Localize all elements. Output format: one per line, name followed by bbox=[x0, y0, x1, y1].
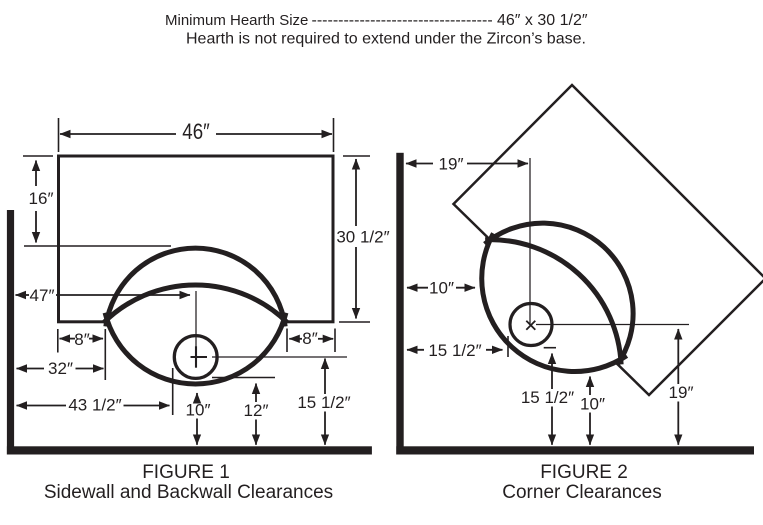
svg-text:8″: 8″ bbox=[302, 329, 317, 348]
svg-text:30 1/2″: 30 1/2″ bbox=[336, 228, 389, 247]
svg-text:15 1/2″: 15 1/2″ bbox=[297, 393, 350, 412]
svg-text:Sidewall and Backwall Clearanc: Sidewall and Backwall Clearances bbox=[44, 482, 333, 503]
svg-text:19″: 19″ bbox=[439, 155, 464, 174]
svg-text:46″: 46″ bbox=[182, 121, 209, 145]
svg-text:15 1/2″: 15 1/2″ bbox=[521, 388, 574, 407]
svg-text:8″: 8″ bbox=[74, 330, 89, 349]
svg-text:43 1/2″: 43 1/2″ bbox=[68, 396, 121, 415]
svg-text:16″: 16″ bbox=[29, 189, 54, 208]
svg-text:10″: 10″ bbox=[186, 400, 211, 419]
svg-text:10″: 10″ bbox=[429, 279, 454, 298]
svg-text:Corner Clearances: Corner Clearances bbox=[502, 482, 661, 503]
svg-text:10″: 10″ bbox=[580, 395, 605, 414]
svg-text:47″: 47″ bbox=[30, 286, 55, 305]
svg-text:15 1/2″: 15 1/2″ bbox=[428, 341, 481, 360]
svg-text:------------------------------: ---------------------------------- bbox=[312, 12, 493, 29]
svg-text:FIGURE 1: FIGURE 1 bbox=[142, 462, 230, 483]
svg-text:46″ x 30 1/2″: 46″ x 30 1/2″ bbox=[497, 12, 588, 29]
svg-text:FIGURE 2: FIGURE 2 bbox=[540, 462, 628, 483]
svg-text:19″: 19″ bbox=[669, 383, 694, 402]
svg-text:Minimum Hearth Size: Minimum Hearth Size bbox=[165, 12, 308, 29]
svg-text:32″: 32″ bbox=[48, 359, 73, 378]
svg-text:12″: 12″ bbox=[244, 401, 269, 420]
svg-text:Hearth is not required to exte: Hearth is not required to extend under t… bbox=[186, 31, 586, 48]
